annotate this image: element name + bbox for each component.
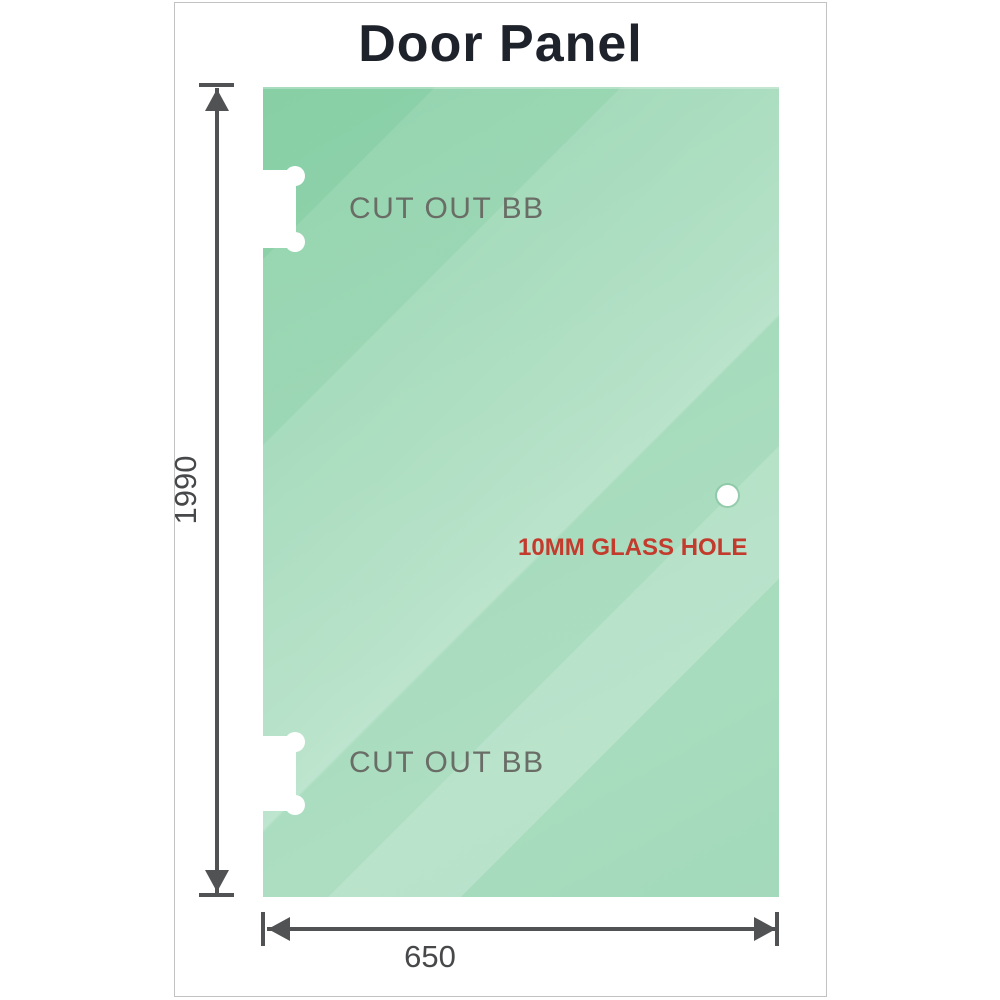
width-dimension-value: 650 <box>404 939 456 975</box>
cutout-bb-bottom-label: CUT OUT BB <box>349 746 545 780</box>
glass-panel: CUT OUT BB CUT OUT BB 10MM GLASS HOLE <box>263 87 779 897</box>
arrow-left-icon <box>268 917 290 941</box>
arrow-up-icon <box>205 89 229 111</box>
width-dimension-line <box>267 927 776 931</box>
arrow-down-icon <box>205 870 229 892</box>
glass-hole-label: 10MM GLASS HOLE <box>518 534 747 562</box>
page-title: Door Panel <box>174 14 827 74</box>
cutout-shape-icon <box>262 164 308 256</box>
height-dimension-line <box>215 88 219 893</box>
door-panel-diagram: Door Panel CUT OUT BB CUT OUT BB 10MM GL… <box>0 0 1000 1000</box>
height-dimension-tick-top <box>199 83 234 87</box>
cutout-bb-top-label: CUT OUT BB <box>349 192 545 226</box>
cutout-shape-icon <box>262 730 308 819</box>
glass-hole <box>717 485 738 506</box>
cutout-bb-bottom <box>262 730 308 819</box>
arrow-right-icon <box>754 917 776 941</box>
height-dimension-value: 1990 <box>168 456 204 525</box>
width-dimension-tick-left <box>261 912 265 946</box>
height-dimension-tick-bottom <box>199 893 234 897</box>
cutout-bb-top <box>262 164 308 256</box>
